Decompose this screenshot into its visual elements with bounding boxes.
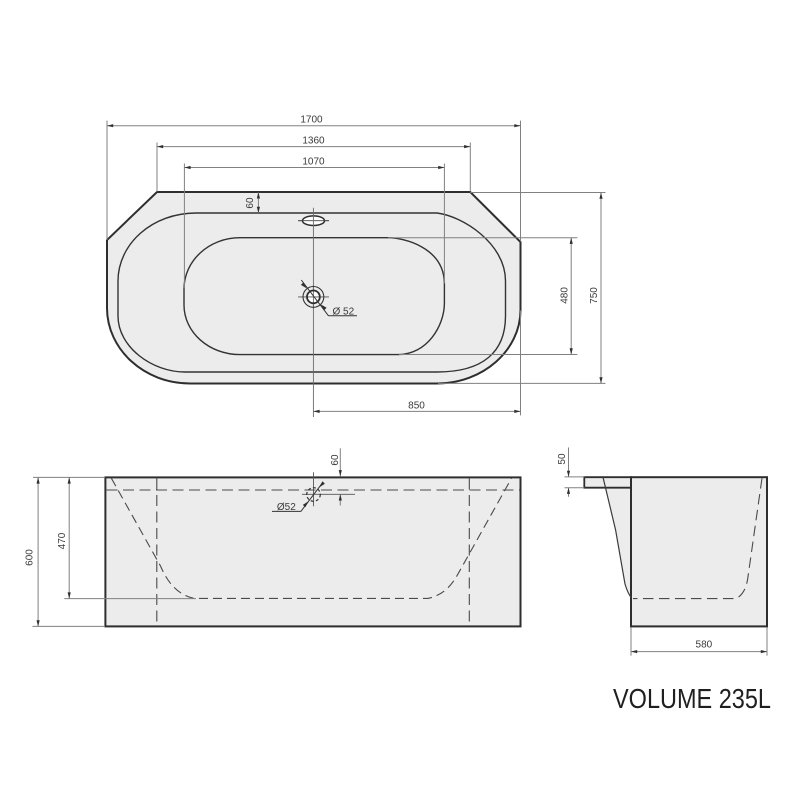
svg-text:750: 750	[589, 287, 600, 304]
svg-text:Ø 52: Ø 52	[333, 307, 355, 318]
svg-text:600: 600	[25, 549, 36, 566]
svg-text:480: 480	[559, 287, 570, 304]
svg-text:580: 580	[696, 640, 713, 651]
svg-text:60: 60	[330, 454, 341, 466]
svg-text:850: 850	[408, 400, 425, 411]
svg-text:1070: 1070	[302, 156, 325, 167]
svg-text:50: 50	[557, 453, 568, 465]
svg-text:470: 470	[57, 532, 68, 549]
svg-text:VOLUME 235L: VOLUME 235L	[613, 683, 771, 714]
svg-text:Ø52: Ø52	[277, 502, 296, 513]
svg-text:1700: 1700	[300, 115, 323, 126]
svg-text:60: 60	[245, 197, 256, 209]
svg-text:1360: 1360	[302, 136, 325, 147]
